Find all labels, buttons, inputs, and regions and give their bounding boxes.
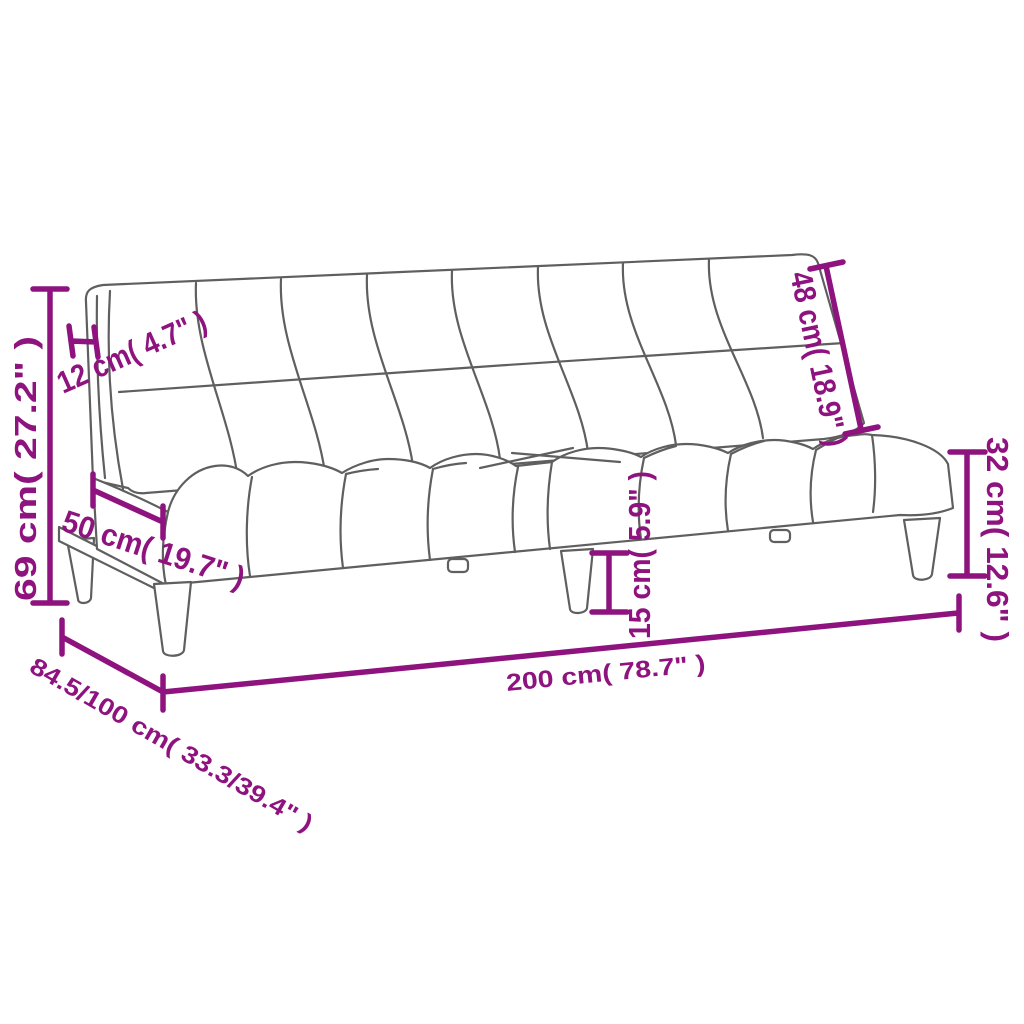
- dimension-diagram: 69 cm( 27.2" ) 12 cm( 4.7" ) 50 cm( 19.7…: [0, 0, 1024, 1024]
- sofa-leg-mid-front: [561, 549, 593, 613]
- sofa-leg-right: [904, 518, 940, 580]
- dim-label-seat-height: 32 cm( 12.6" ): [980, 437, 1015, 642]
- sofa-leg-front-left: [154, 582, 191, 656]
- dimension-line-seat-height: [950, 452, 985, 576]
- sofa-dimension-drawing: 69 cm( 27.2" ) 12 cm( 4.7" ) 50 cm( 19.7…: [0, 0, 1024, 1024]
- sofa-leg-stub-left: [448, 559, 468, 572]
- dimension-line-overall-width: [163, 596, 959, 710]
- dim-label-overall-height: 69 cm( 27.2" ): [8, 336, 43, 601]
- dim-label-leg-height: 15 cm( 5.9" ): [622, 471, 657, 639]
- sofa-leg-stub-right: [770, 530, 790, 542]
